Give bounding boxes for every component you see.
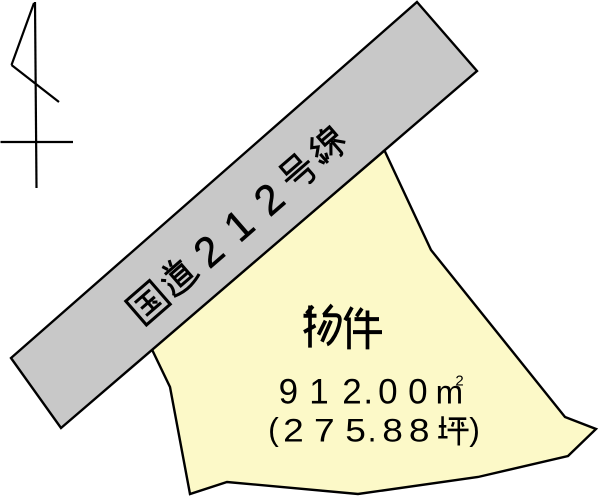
- svg-text:.: .: [368, 413, 377, 449]
- svg-text:5: 5: [345, 414, 366, 449]
- svg-text:0: 0: [378, 373, 397, 412]
- svg-text:8: 8: [409, 414, 430, 449]
- svg-text:7: 7: [314, 414, 335, 449]
- svg-text:8: 8: [382, 414, 403, 449]
- svg-text:9: 9: [279, 373, 298, 412]
- svg-text:2: 2: [455, 372, 463, 389]
- svg-text:2: 2: [342, 373, 361, 412]
- svg-text:1: 1: [309, 373, 328, 412]
- svg-text:0: 0: [408, 373, 427, 412]
- svg-text:2: 2: [283, 414, 304, 449]
- svg-text:): ): [469, 412, 480, 448]
- svg-text:.: .: [363, 373, 373, 412]
- svg-text:(: (: [268, 412, 279, 448]
